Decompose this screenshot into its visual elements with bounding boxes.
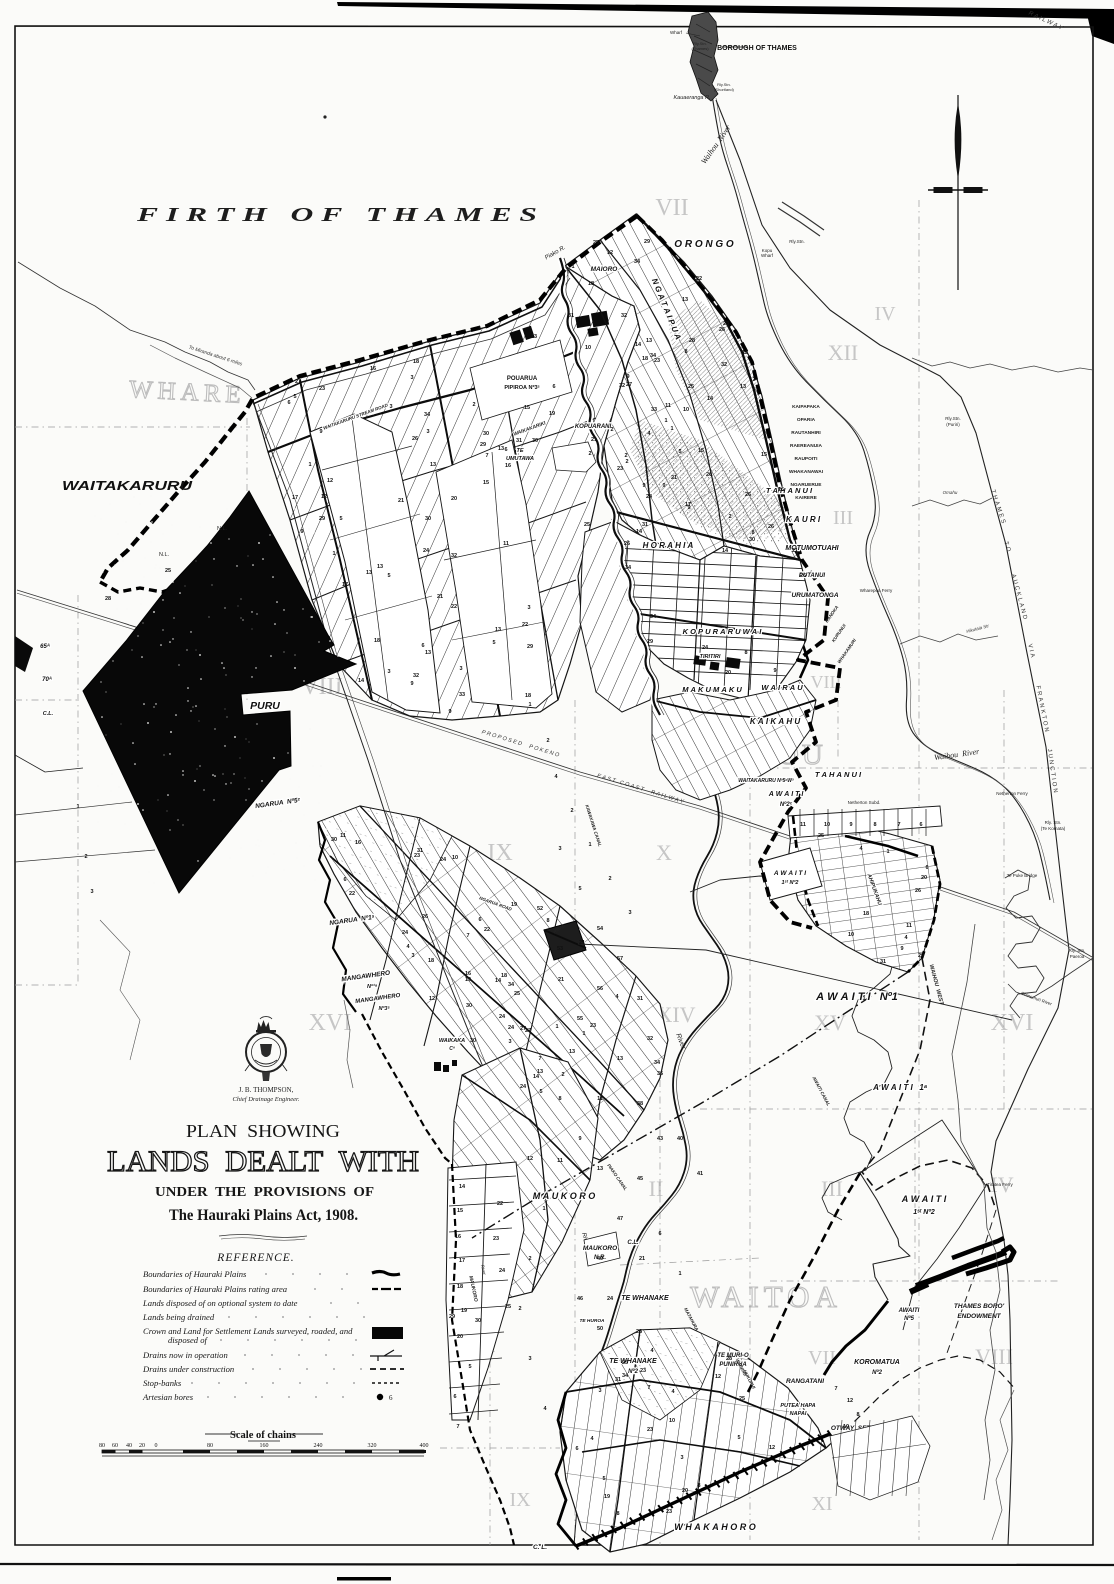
- svg-text:8: 8: [684, 349, 687, 355]
- svg-text:1: 1: [678, 1271, 681, 1277]
- svg-text:23: 23: [590, 1023, 596, 1029]
- svg-text:18: 18: [525, 693, 531, 699]
- svg-text:2: 2: [472, 402, 475, 408]
- svg-text:32: 32: [619, 383, 625, 389]
- svg-text:VIII: VIII: [975, 1344, 1013, 1369]
- svg-text:31: 31: [568, 313, 574, 319]
- svg-text:16: 16: [355, 840, 361, 846]
- svg-text:1: 1: [571, 264, 574, 270]
- svg-text:O R O N G O: O R O N G O: [674, 239, 734, 250]
- svg-text:The Hauraki Plains Act, 1908.: The Hauraki Plains Act, 1908.: [169, 1207, 358, 1224]
- svg-text:1: 1: [528, 702, 531, 708]
- svg-text:57: 57: [617, 956, 623, 962]
- svg-text:26: 26: [915, 888, 921, 894]
- svg-text:Paeroa: Paeroa: [1070, 954, 1085, 959]
- svg-text:23: 23: [493, 1236, 499, 1242]
- svg-text:28: 28: [689, 338, 695, 344]
- svg-text:29: 29: [319, 516, 325, 522]
- svg-text:Tiratea Ferry: Tiratea Ferry: [987, 1182, 1013, 1187]
- svg-text:10: 10: [683, 407, 689, 413]
- svg-text:3: 3: [90, 889, 93, 895]
- svg-text:43: 43: [657, 1136, 663, 1142]
- svg-text:8: 8: [751, 530, 754, 536]
- svg-text:Wharf: Wharf: [761, 253, 774, 258]
- svg-text:TE: TE: [516, 448, 523, 454]
- svg-text:22: 22: [497, 1201, 503, 1207]
- svg-text:20: 20: [725, 670, 731, 676]
- svg-text:POUARUA: POUARUA: [507, 376, 538, 382]
- svg-text:47: 47: [617, 1216, 623, 1222]
- svg-text:VII: VII: [808, 1347, 836, 1369]
- svg-text:UNDER THE PROVISIONS OF: UNDER THE PROVISIONS OF: [155, 1185, 374, 1200]
- svg-text:URUMATONGA: URUMATONGA: [791, 592, 838, 599]
- svg-text:25: 25: [593, 240, 599, 246]
- svg-text:16: 16: [465, 971, 471, 977]
- svg-text:15: 15: [483, 480, 489, 486]
- svg-text:21: 21: [591, 437, 597, 443]
- svg-text:25: 25: [739, 1396, 745, 1402]
- svg-text:6: 6: [504, 447, 507, 453]
- svg-text:3: 3: [508, 1039, 511, 1045]
- svg-text:2: 2: [84, 854, 87, 860]
- svg-text:18: 18: [413, 359, 419, 365]
- svg-text:5: 5: [293, 394, 296, 400]
- svg-text:24: 24: [508, 1025, 515, 1031]
- svg-text:18: 18: [501, 973, 507, 979]
- svg-text:A W A I T I: A W A I T I: [773, 870, 806, 877]
- svg-text:WAIKAKA: WAIKAKA: [439, 1038, 465, 1044]
- svg-text:30: 30: [532, 438, 538, 444]
- svg-text:27: 27: [295, 379, 301, 385]
- svg-text:5: 5: [339, 516, 342, 522]
- svg-text:Omahu: Omahu: [943, 490, 958, 495]
- svg-text:Nº3ˢ: Nº3ˢ: [378, 1005, 390, 1012]
- svg-text:5: 5: [678, 449, 681, 455]
- svg-text:7: 7: [485, 453, 488, 459]
- svg-text:1: 1: [588, 842, 591, 848]
- svg-text:23: 23: [654, 358, 660, 364]
- svg-text:17: 17: [459, 1258, 465, 1264]
- svg-text:6: 6: [925, 865, 928, 871]
- svg-text:25: 25: [622, 1360, 628, 1366]
- svg-text:18: 18: [457, 1284, 463, 1290]
- svg-text:23: 23: [666, 1509, 672, 1515]
- svg-text:14: 14: [636, 529, 643, 535]
- svg-text:30: 30: [475, 1318, 481, 1324]
- svg-text:21: 21: [639, 1256, 645, 1262]
- svg-text:38: 38: [637, 1101, 643, 1107]
- svg-text:12: 12: [327, 478, 333, 484]
- svg-text:8: 8: [616, 1511, 619, 1517]
- svg-text:W A I R A U: W A I R A U: [761, 683, 803, 692]
- svg-text:6: 6: [478, 917, 481, 923]
- svg-text:N.L.: N.L.: [217, 526, 228, 532]
- svg-text:6: 6: [575, 1446, 578, 1452]
- svg-text:16: 16: [370, 366, 376, 372]
- svg-text:15: 15: [457, 1208, 463, 1214]
- svg-text:XVI: XVI: [991, 1010, 1034, 1036]
- svg-text:40: 40: [677, 1136, 683, 1142]
- svg-text:26: 26: [719, 327, 725, 333]
- svg-text:32: 32: [451, 553, 457, 559]
- svg-text:26: 26: [624, 541, 630, 547]
- svg-text:Rly. Stn.: Rly. Stn.: [1069, 948, 1086, 953]
- svg-text:(Thames): (Thames): [691, 46, 709, 51]
- svg-text:6: 6: [552, 384, 555, 390]
- svg-text:12: 12: [321, 494, 327, 500]
- svg-text:21: 21: [579, 940, 585, 946]
- svg-text:17: 17: [292, 495, 298, 501]
- svg-text:26: 26: [778, 487, 784, 493]
- svg-text:PLAN SHOWING: PLAN SHOWING: [186, 1121, 340, 1141]
- svg-text:III: III: [833, 507, 853, 529]
- svg-text:3: 3: [477, 326, 480, 332]
- svg-text:24: 24: [499, 1268, 506, 1274]
- svg-text:12: 12: [715, 1374, 721, 1380]
- svg-text:1: 1: [886, 849, 889, 855]
- svg-text:21: 21: [792, 548, 798, 554]
- svg-text:7: 7: [897, 822, 900, 828]
- svg-text:11: 11: [665, 403, 671, 409]
- svg-text:23: 23: [414, 853, 420, 859]
- svg-text:20: 20: [139, 1443, 145, 1449]
- svg-text:0: 0: [155, 1443, 158, 1449]
- svg-text:9: 9: [662, 483, 665, 489]
- svg-text:70ᴬ: 70ᴬ: [42, 675, 52, 683]
- svg-text:TE WHANAKE: TE WHANAKE: [621, 1295, 669, 1302]
- svg-text:22: 22: [349, 891, 355, 897]
- svg-text:19: 19: [604, 1494, 610, 1500]
- svg-text:6: 6: [343, 877, 346, 883]
- svg-text:24: 24: [423, 548, 430, 554]
- svg-text:24: 24: [402, 930, 409, 936]
- svg-text:Nº2: Nº2: [872, 1369, 883, 1376]
- svg-text:5: 5: [578, 886, 581, 892]
- svg-text:Wharf: Wharf: [670, 30, 683, 35]
- svg-text:13: 13: [682, 297, 688, 303]
- svg-text:9: 9: [642, 483, 645, 489]
- svg-text:32: 32: [621, 313, 627, 319]
- svg-text:11: 11: [597, 1096, 603, 1102]
- svg-text:K O P U R A R U W A I: K O P U R A R U W A I: [683, 627, 763, 636]
- svg-text:26: 26: [422, 914, 428, 920]
- svg-text:(Te Komata): (Te Komata): [1041, 826, 1066, 831]
- svg-text:5: 5: [539, 1089, 542, 1095]
- svg-text:3: 3: [389, 404, 392, 410]
- svg-text:12: 12: [847, 1398, 853, 1404]
- svg-text:1: 1: [670, 426, 673, 432]
- svg-text:23: 23: [647, 1427, 653, 1433]
- svg-text:ENDOWMENT: ENDOWMENT: [957, 1313, 1001, 1320]
- svg-text:3: 3: [387, 669, 390, 675]
- svg-text:30: 30: [466, 1003, 472, 1009]
- svg-text:1: 1: [308, 462, 311, 468]
- svg-text:1: 1: [582, 1031, 585, 1037]
- svg-text:3: 3: [459, 666, 462, 672]
- svg-text:34: 34: [508, 982, 515, 988]
- svg-text:24: 24: [440, 857, 447, 863]
- svg-text:10: 10: [452, 855, 458, 861]
- svg-text:9: 9: [319, 429, 322, 435]
- svg-text:A W A I T I: A W A I T I: [768, 791, 805, 798]
- svg-text:26: 26: [768, 524, 774, 530]
- svg-text:21: 21: [671, 475, 677, 481]
- svg-text:20: 20: [921, 875, 927, 881]
- svg-text:9: 9: [300, 529, 303, 535]
- svg-text:32: 32: [721, 362, 727, 368]
- svg-text:16: 16: [505, 463, 511, 469]
- svg-text:26: 26: [745, 492, 751, 498]
- svg-text:LANDS DEALT WITH: LANDS DEALT WITH: [107, 1145, 419, 1178]
- svg-text:9: 9: [448, 709, 451, 715]
- svg-text:Stop-banks: Stop-banks: [143, 1378, 182, 1388]
- svg-text:16: 16: [455, 1234, 461, 1240]
- svg-text:REFERENCE.: REFERENCE.: [216, 1252, 294, 1264]
- svg-text:Te Puke Bridge: Te Puke Bridge: [1007, 873, 1038, 878]
- svg-text:11: 11: [557, 1158, 563, 1164]
- svg-text:24: 24: [646, 494, 653, 500]
- svg-text:XII: XII: [828, 340, 859, 365]
- svg-text:10: 10: [843, 1424, 849, 1430]
- svg-text:6: 6: [421, 643, 424, 649]
- svg-text:14: 14: [722, 548, 729, 554]
- svg-text:6: 6: [658, 1231, 661, 1237]
- svg-text:PIPIROA Nº3ˢ: PIPIROA Nº3ˢ: [504, 385, 539, 391]
- svg-text:26: 26: [706, 472, 712, 478]
- svg-text:N.L.: N.L.: [159, 552, 170, 558]
- svg-text:Nº5: Nº5: [904, 1315, 915, 1322]
- svg-text:27: 27: [525, 1028, 531, 1034]
- svg-text:18: 18: [428, 958, 434, 964]
- svg-text:28: 28: [726, 1356, 732, 1362]
- svg-text:11: 11: [503, 541, 509, 547]
- svg-text:Boundaries of Hauraki Plains r: Boundaries of Hauraki Plains rating area: [143, 1284, 287, 1294]
- svg-text:30: 30: [749, 537, 755, 543]
- svg-text:Drains now in operation: Drains now in operation: [142, 1350, 228, 1360]
- svg-text:7: 7: [466, 933, 469, 939]
- svg-text:2: 2: [625, 459, 628, 465]
- svg-text:8: 8: [546, 918, 549, 924]
- svg-text:19: 19: [461, 1308, 467, 1314]
- svg-text:13: 13: [495, 627, 501, 633]
- svg-text:45: 45: [637, 1176, 643, 1182]
- svg-text:9: 9: [773, 668, 776, 674]
- svg-text:BOROUGH OF THAMES: BOROUGH OF THAMES: [717, 45, 797, 52]
- svg-text:15: 15: [524, 405, 530, 411]
- svg-text:19: 19: [549, 411, 555, 417]
- svg-text:13: 13: [366, 570, 372, 576]
- svg-text:30: 30: [331, 837, 337, 843]
- svg-text:XVI: XVI: [309, 1010, 352, 1036]
- svg-text:13: 13: [531, 334, 537, 340]
- svg-text:30: 30: [483, 431, 489, 437]
- svg-text:15: 15: [698, 448, 704, 454]
- svg-text:12: 12: [742, 350, 748, 356]
- svg-text:5: 5: [737, 1435, 740, 1441]
- svg-text:IV: IV: [874, 303, 896, 325]
- svg-text:26: 26: [800, 573, 806, 579]
- svg-text:8: 8: [697, 1483, 700, 1489]
- svg-text:14: 14: [358, 678, 365, 684]
- svg-text:10: 10: [848, 932, 854, 938]
- svg-text:TE HUROA: TE HUROA: [579, 1318, 605, 1324]
- svg-text:40: 40: [126, 1443, 132, 1449]
- svg-text:1: 1: [76, 804, 79, 810]
- svg-text:6: 6: [389, 1394, 393, 1402]
- svg-text:8: 8: [744, 650, 747, 656]
- svg-text:25: 25: [584, 522, 590, 528]
- svg-text:31: 31: [637, 996, 643, 1002]
- svg-text:2: 2: [624, 453, 627, 459]
- svg-text:9: 9: [578, 1136, 581, 1142]
- svg-text:1ˢᵗ Nº2: 1ˢᵗ Nº2: [913, 1209, 935, 1216]
- svg-text:46: 46: [577, 1296, 583, 1302]
- svg-text:11: 11: [906, 923, 912, 929]
- svg-text:3: 3: [628, 910, 631, 916]
- svg-text:7: 7: [456, 1424, 459, 1430]
- svg-text:Scale of chains: Scale of chains: [230, 1430, 296, 1441]
- svg-text:33: 33: [651, 407, 657, 413]
- svg-text:2: 2: [546, 738, 549, 744]
- svg-text:19: 19: [511, 902, 517, 908]
- svg-text:5: 5: [468, 1364, 471, 1370]
- svg-text:8: 8: [873, 822, 876, 828]
- svg-text:28: 28: [105, 596, 111, 602]
- svg-text:disposed of: disposed of: [168, 1335, 209, 1345]
- svg-text:VII: VII: [655, 195, 688, 221]
- svg-text:3: 3: [528, 1356, 531, 1362]
- svg-text:UMUTAWA: UMUTAWA: [506, 456, 534, 462]
- svg-text:(Puriri): (Puriri): [946, 422, 960, 427]
- svg-text:Boundaries of Hauraki Plains: Boundaries of Hauraki Plains: [143, 1269, 247, 1279]
- svg-text:KOROMATUA: KOROMATUA: [854, 1359, 900, 1366]
- svg-text:32: 32: [413, 673, 419, 679]
- svg-text:2: 2: [608, 876, 611, 882]
- svg-text:IX: IX: [509, 1489, 531, 1511]
- svg-text:K A I K A H U: K A I K A H U: [750, 717, 800, 726]
- svg-text:10: 10: [585, 345, 591, 351]
- svg-text:Nº2: Nº2: [628, 1368, 639, 1375]
- svg-text:5: 5: [602, 1476, 605, 1482]
- svg-text:7: 7: [647, 1385, 650, 1391]
- svg-text:33: 33: [459, 692, 465, 698]
- svg-text:26: 26: [412, 436, 418, 442]
- svg-text:Rly.Stn.: Rly.Stn.: [789, 239, 804, 244]
- svg-text:TIRITIRI: TIRITIRI: [700, 654, 721, 660]
- svg-text:3: 3: [680, 1455, 683, 1461]
- svg-text:3: 3: [426, 429, 429, 435]
- svg-text:17: 17: [342, 582, 348, 588]
- svg-text:28: 28: [636, 1329, 642, 1335]
- svg-text:29: 29: [644, 239, 650, 245]
- svg-text:Artesian bores: Artesian bores: [142, 1392, 194, 1402]
- svg-text:25: 25: [505, 1304, 511, 1310]
- svg-text:34: 34: [622, 1373, 629, 1379]
- svg-text:C.L.: C.L.: [43, 711, 54, 717]
- svg-text:14: 14: [635, 342, 642, 348]
- svg-text:WAITOA: WAITOA: [690, 1279, 842, 1314]
- svg-text:NGARUERUE: NGARUERUE: [791, 482, 823, 488]
- svg-text:3: 3: [411, 953, 414, 959]
- svg-text:13: 13: [617, 1056, 623, 1062]
- svg-text:24: 24: [607, 1296, 614, 1302]
- svg-text:9: 9: [687, 505, 690, 511]
- svg-text:14: 14: [533, 1074, 540, 1080]
- svg-text:25: 25: [514, 991, 520, 997]
- svg-text:3: 3: [527, 605, 530, 611]
- svg-text:10: 10: [824, 822, 830, 828]
- svg-text:KAIRERE: KAIRERE: [795, 495, 817, 501]
- svg-text:2: 2: [610, 427, 613, 433]
- svg-text:13: 13: [430, 462, 436, 468]
- svg-text:5: 5: [492, 640, 495, 646]
- svg-text:J. B. THOMPSON,: J. B. THOMPSON,: [239, 1086, 294, 1094]
- svg-text:Chief Drainage Engineer.: Chief Drainage Engineer.: [233, 1096, 300, 1103]
- svg-text:M A U K O R O: M A U K O R O: [533, 1191, 596, 1201]
- svg-text:22: 22: [484, 927, 490, 933]
- svg-text:50: 50: [597, 1326, 603, 1332]
- svg-text:13: 13: [646, 338, 652, 344]
- svg-text:22: 22: [522, 622, 528, 628]
- svg-text:24: 24: [520, 1084, 527, 1090]
- svg-text:2: 2: [752, 377, 755, 383]
- svg-text:MAUKORO: MAUKORO: [583, 1245, 617, 1252]
- svg-text:12: 12: [769, 1445, 775, 1451]
- svg-text:3: 3: [410, 375, 413, 381]
- svg-text:2: 2: [728, 514, 731, 520]
- svg-text:KOPUARANI: KOPUARANI: [575, 424, 612, 430]
- svg-text:2: 2: [528, 1256, 531, 1262]
- svg-text:34: 34: [654, 1060, 661, 1066]
- svg-text:19: 19: [465, 977, 471, 983]
- svg-text:41: 41: [697, 1171, 703, 1177]
- svg-text:14: 14: [459, 1184, 466, 1190]
- svg-text:1: 1: [664, 418, 667, 424]
- svg-text:Nº¹ᵃ: Nº¹ᵃ: [367, 983, 378, 990]
- svg-text:6: 6: [453, 1394, 456, 1400]
- svg-text:22: 22: [451, 604, 457, 610]
- svg-text:60: 60: [112, 1443, 118, 1449]
- svg-text:NAPAI: NAPAI: [790, 1411, 807, 1417]
- svg-text:PURU: PURU: [250, 700, 280, 712]
- svg-text:20: 20: [682, 1488, 688, 1494]
- svg-text:18: 18: [642, 356, 648, 362]
- svg-text:15: 15: [761, 452, 767, 458]
- svg-text:31: 31: [516, 438, 522, 444]
- svg-text:PUTEA HAPA: PUTEA HAPA: [780, 1403, 815, 1409]
- svg-text:6: 6: [287, 400, 290, 406]
- svg-text:Wharepoa Ferry: Wharepoa Ferry: [860, 588, 893, 593]
- svg-text:10: 10: [669, 1418, 675, 1424]
- svg-text:49: 49: [597, 1256, 603, 1262]
- svg-text:55: 55: [577, 1016, 583, 1022]
- svg-text:22: 22: [696, 276, 702, 282]
- svg-text:400: 400: [420, 1443, 429, 1449]
- svg-text:Netherton Subd.: Netherton Subd.: [848, 800, 881, 805]
- svg-text:13: 13: [377, 564, 383, 570]
- svg-text:WAITAKARURU Nº5ᶜW²: WAITAKARURU Nº5ᶜW²: [738, 778, 794, 784]
- svg-text:53: 53: [557, 946, 563, 952]
- svg-text:29: 29: [449, 1314, 455, 1320]
- svg-text:160: 160: [260, 1443, 269, 1449]
- svg-text:18: 18: [374, 638, 380, 644]
- svg-text:WAITAKARURU: WAITAKARURU: [62, 478, 193, 493]
- svg-text:Rly. Stn.: Rly. Stn.: [1045, 820, 1062, 825]
- svg-text:RAUTANHIRI: RAUTANHIRI: [791, 430, 821, 436]
- svg-text:13: 13: [425, 650, 431, 656]
- svg-text:18: 18: [863, 911, 869, 917]
- svg-text:X: X: [656, 840, 672, 865]
